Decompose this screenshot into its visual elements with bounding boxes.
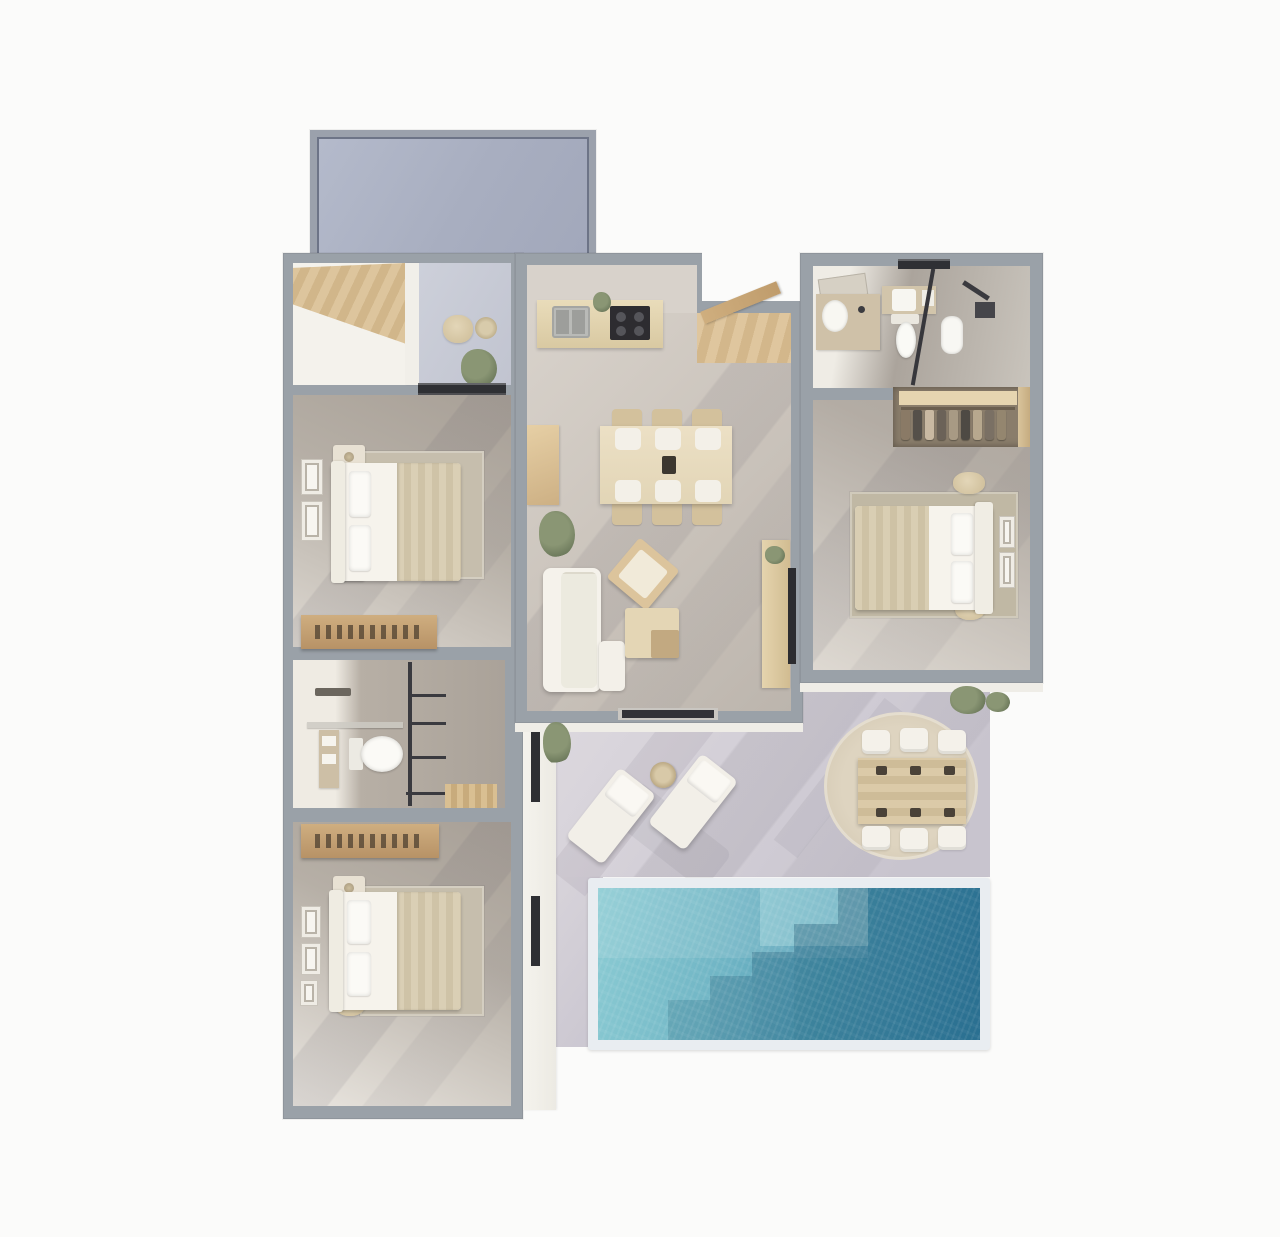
bathroom-1-counter <box>307 722 403 728</box>
hanging-garment <box>913 410 922 440</box>
outdoor-chair-5 <box>900 828 928 852</box>
dining-seat-5 <box>655 480 681 502</box>
bedroom-1-pillow <box>349 471 371 517</box>
bedroom-1-bed <box>331 463 461 581</box>
bedroom-1-window <box>418 383 506 395</box>
bedroom-3-wall-art <box>999 516 1015 548</box>
bedroom-2-pillow <box>347 900 371 944</box>
shower-glass-bar-3 <box>408 756 446 759</box>
place-setting-4 <box>876 808 887 817</box>
outdoor-chair-3 <box>938 730 966 754</box>
carport-surface <box>317 137 589 256</box>
place-setting-5 <box>910 808 921 817</box>
dining-seat-3 <box>695 428 721 450</box>
burner-3 <box>616 326 626 336</box>
bedroom-2-bed <box>329 892 461 1010</box>
bedroom-1-dresser <box>301 615 437 649</box>
hanging-garment <box>937 410 946 440</box>
dining-seat-4 <box>615 480 641 502</box>
lounger-side-table <box>650 762 676 788</box>
central-wing-walls <box>515 253 803 723</box>
bathroom-1-floor <box>293 660 505 808</box>
burner <box>616 312 626 322</box>
floor-plan-canvas <box>0 0 1280 1237</box>
wardrobe-top-shelf <box>899 391 1017 405</box>
place-setting-2 <box>910 766 921 775</box>
wardrobe-clothes <box>901 407 1015 444</box>
outdoor-chair-4 <box>862 826 890 850</box>
burner-4 <box>634 326 644 336</box>
side-face-window <box>531 728 540 802</box>
kitchen-counter <box>537 300 663 348</box>
dining-seat <box>615 428 641 450</box>
outdoor-chair-seat-3 <box>938 730 966 754</box>
towels <box>322 736 336 746</box>
hanging-garment <box>901 410 910 440</box>
hanging-garment <box>973 410 982 440</box>
sofa-cushions <box>561 572 597 688</box>
tv-screen <box>788 568 796 664</box>
dining-seat-2 <box>655 428 681 450</box>
bedroom-2-dresser <box>301 824 439 858</box>
bedroom-1-headboard <box>331 461 345 583</box>
place-setting-6 <box>944 808 955 817</box>
dining-chair-6 <box>692 501 722 525</box>
place-setting <box>876 766 887 775</box>
bathtub <box>941 316 963 354</box>
bedroom-3-wall-art-2 <box>999 552 1015 588</box>
vanity-faucet <box>858 306 865 313</box>
bedroom-1-blanket <box>397 463 461 581</box>
table-centerpiece <box>662 456 676 474</box>
storage-partition-wall <box>405 263 419 385</box>
outdoor-chair-2 <box>900 728 928 752</box>
dresser-decor <box>315 625 424 639</box>
bedroom-2-pillow-2 <box>347 952 371 996</box>
bedroom-3-floor <box>813 266 1030 670</box>
burner-2 <box>634 312 644 322</box>
outdoor-chair <box>862 730 890 754</box>
console-plant <box>765 546 785 564</box>
carport <box>310 130 596 263</box>
coffee-table-tray <box>651 630 679 658</box>
porch-plant <box>461 349 497 387</box>
bathroom-bedroom-wall <box>813 388 893 400</box>
vanity-sink <box>822 300 848 332</box>
living-room-plant <box>539 511 575 557</box>
right-wing-walls <box>800 253 1043 683</box>
bedroom-2-wall-art-2 <box>301 943 321 975</box>
bedroom-3-headboard <box>975 502 993 614</box>
bedroom-2-wall-art <box>301 906 321 938</box>
toilet-2-bowl <box>896 322 916 358</box>
bedroom-2-floor <box>293 822 511 1106</box>
terrace-door-plant <box>543 722 571 764</box>
outdoor-chair-seat <box>862 730 890 754</box>
shower-arm <box>962 280 990 301</box>
bedroom-2-headboard <box>329 890 343 1012</box>
sliding-door-glass <box>622 710 714 718</box>
bedroom-3-pillow <box>951 513 973 555</box>
sink-basin <box>556 310 569 334</box>
bathroom-1-faucet <box>315 688 351 696</box>
bedroom-3-blanket <box>855 506 929 610</box>
outdoor-dining-table <box>858 758 966 824</box>
bathroom-2-vanity <box>816 294 880 350</box>
pool <box>588 878 990 1050</box>
dining-chair-4 <box>612 501 642 525</box>
hanging-garment <box>949 410 958 440</box>
outdoor-chair-seat-2 <box>900 728 928 752</box>
bedroom-1-wall-art <box>301 459 323 495</box>
right-wing-south-face <box>800 683 1043 692</box>
shower-glass-bar-2 <box>408 722 446 725</box>
terrace-corner-plant <box>950 686 986 714</box>
sink-basin-2 <box>572 310 585 334</box>
hanging-garment <box>997 410 1006 440</box>
shower-wood-mat <box>445 784 497 808</box>
tv-console <box>762 540 790 688</box>
kitchen-plant <box>593 292 611 312</box>
left-wing-walls <box>283 253 523 1119</box>
bedroom-3-bed <box>855 506 993 610</box>
terrace-corner-plant-2 <box>986 692 1010 712</box>
kitchen-sink <box>552 306 590 338</box>
coffee-table <box>625 608 679 658</box>
shower-head-tray <box>975 302 995 318</box>
bedroom-1-pillow-2 <box>349 525 371 571</box>
towels-2 <box>322 754 336 764</box>
storage-wood-shelf <box>293 263 405 385</box>
pool-water-texture <box>598 888 980 1040</box>
bedroom-3-pouf-top <box>953 472 985 494</box>
shower-glass-bar-4 <box>406 792 448 795</box>
toilet-bowl <box>361 736 403 772</box>
bathroom-1-vanity-cabinet <box>319 730 339 788</box>
sofa-chaise <box>599 641 625 691</box>
armchair-cushion <box>618 549 669 600</box>
bedroom-1-floor <box>293 395 511 647</box>
bedroom-3-pillow-2 <box>951 561 973 603</box>
shower-glass-rail <box>408 662 412 806</box>
bathroom-2-floor <box>813 266 1030 388</box>
porch-pouf <box>443 315 473 343</box>
hanging-garment <box>961 410 970 440</box>
hanging-garment <box>985 410 994 440</box>
pool-water <box>598 888 980 1040</box>
shower-glass-bar <box>408 694 446 697</box>
bathroom-2-window <box>898 259 950 269</box>
dining-sideboard <box>527 425 559 505</box>
storage-room-floor <box>293 263 405 385</box>
bedroom-1-lamp <box>344 452 354 462</box>
outdoor-chair-6 <box>938 826 966 850</box>
dining-seat-6 <box>695 480 721 502</box>
wardrobe <box>893 387 1030 447</box>
side-face-window-2 <box>531 896 540 966</box>
porch-side-table <box>475 317 497 339</box>
sofa <box>543 568 601 692</box>
dresser-decor-2 <box>315 834 425 848</box>
stove <box>610 306 650 340</box>
entry-porch-floor <box>419 263 511 385</box>
hanging-garment <box>925 410 934 440</box>
dining-table <box>600 426 732 504</box>
bedroom-2-blanket <box>397 892 461 1010</box>
place-setting-3 <box>944 766 955 775</box>
dining-chair-5 <box>652 501 682 525</box>
terrace-sliding-door <box>618 708 718 720</box>
bedroom-1-wall-art-2 <box>301 501 323 541</box>
wardrobe-side-panel <box>1018 387 1030 447</box>
bedroom-2-wall-art-3 <box>300 980 318 1006</box>
counter-basin <box>892 289 916 311</box>
